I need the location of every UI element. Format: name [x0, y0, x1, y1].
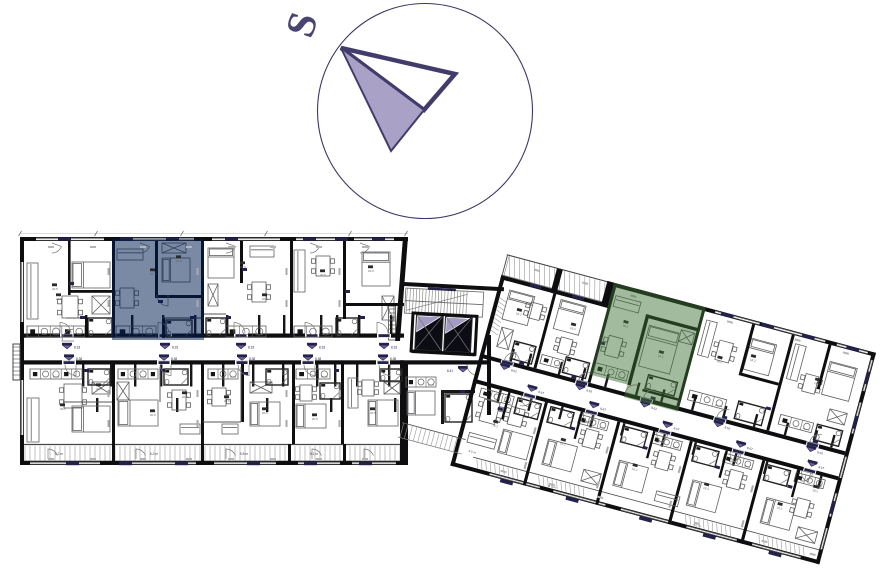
svg-text:8.33: 8.33 — [319, 345, 325, 349]
svg-text:5.1 m: 5.1 m — [310, 452, 318, 456]
svg-text:20.5: 20.5 — [96, 387, 102, 391]
svg-text:20.5: 20.5 — [312, 417, 318, 421]
svg-text:20.5: 20.5 — [262, 297, 268, 301]
svg-text:20.5: 20.5 — [370, 411, 376, 415]
svg-text:20.5: 20.5 — [150, 272, 156, 276]
svg-text:8.38: 8.38 — [390, 357, 396, 361]
svg-text:8.33: 8.33 — [172, 345, 178, 349]
svg-text:20.5: 20.5 — [240, 265, 246, 269]
svg-text:20.5: 20.5 — [176, 259, 182, 263]
svg-text:20.5: 20.5 — [320, 273, 326, 277]
svg-text:20.5: 20.5 — [52, 287, 58, 291]
svg-text:8.33: 8.33 — [391, 345, 397, 349]
svg-text:20.5: 20.5 — [60, 407, 66, 411]
svg-text:20.5: 20.5 — [262, 411, 268, 415]
svg-text:8.33: 8.33 — [74, 345, 80, 349]
svg-text:20.5: 20.5 — [56, 297, 62, 301]
svg-text:20.5: 20.5 — [150, 413, 156, 417]
svg-text:5.8 m: 5.8 m — [240, 452, 248, 456]
svg-text:8.38: 8.38 — [76, 357, 82, 361]
svg-text:20.5: 20.5 — [368, 269, 374, 273]
svg-text:20.5: 20.5 — [224, 399, 230, 403]
svg-text:8.33: 8.33 — [248, 345, 254, 349]
svg-text:8.38: 8.38 — [315, 357, 321, 361]
svg-text:20.5: 20.5 — [182, 395, 188, 399]
svg-text:8.38: 8.38 — [249, 357, 255, 361]
svg-text:8.38: 8.38 — [171, 357, 177, 361]
svg-text:8.41: 8.41 — [447, 369, 453, 373]
svg-text:6.2 m: 6.2 m — [150, 452, 158, 456]
